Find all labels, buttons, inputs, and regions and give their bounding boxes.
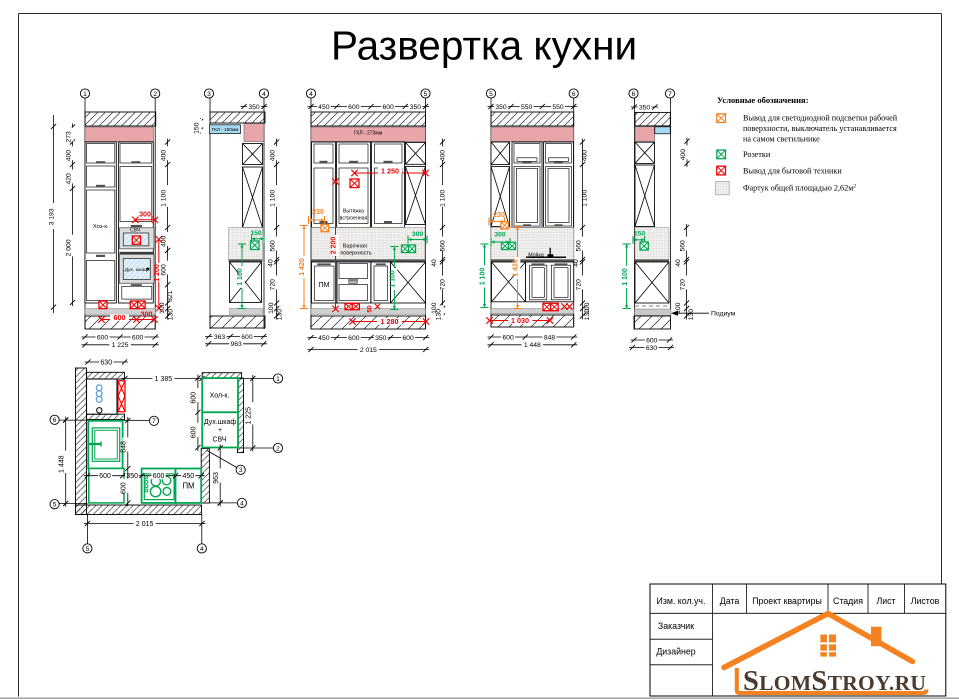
- svg-text:Развертка кухни: Развертка кухни: [331, 23, 637, 69]
- svg-text:560: 560: [575, 240, 582, 252]
- svg-text:600: 600: [382, 104, 394, 111]
- svg-text:600: 600: [646, 337, 658, 344]
- svg-text:1: 1: [83, 91, 87, 98]
- svg-text:300: 300: [412, 231, 424, 238]
- svg-text:720: 720: [440, 279, 447, 291]
- svg-text:400: 400: [65, 150, 72, 162]
- svg-text:40: 40: [675, 259, 682, 267]
- svg-text:550: 550: [552, 104, 564, 111]
- svg-text:Подиум: Подиум: [711, 311, 736, 318]
- svg-text:400: 400: [440, 150, 447, 162]
- svg-text:5: 5: [86, 546, 90, 553]
- svg-text:963: 963: [213, 472, 220, 484]
- svg-text:2 000: 2 000: [65, 239, 72, 256]
- svg-text:2: 2: [276, 445, 280, 452]
- svg-text:600: 600: [191, 392, 198, 404]
- svg-text:Вывод для светодиодной подсвет: Вывод для светодиодной подсветки рабочей: [743, 114, 898, 123]
- svg-text:400: 400: [160, 150, 167, 162]
- svg-text:130: 130: [435, 309, 442, 321]
- svg-text:Дух. шкаф: Дух. шкаф: [125, 267, 149, 273]
- svg-text:560: 560: [679, 240, 686, 252]
- svg-text:Варочная: Варочная: [343, 244, 367, 250]
- svg-text:720: 720: [269, 279, 276, 291]
- svg-text:350: 350: [495, 104, 507, 111]
- svg-text:1 100: 1 100: [237, 268, 244, 286]
- svg-text:на самом светильнике: на самом светильнике: [743, 134, 820, 143]
- svg-text:600: 600: [348, 104, 360, 111]
- svg-text:100: 100: [159, 302, 166, 314]
- svg-text:1 100: 1 100: [269, 190, 276, 207]
- svg-text:Условные обозначения:: Условные обозначения:: [717, 95, 809, 105]
- svg-text:450: 450: [183, 473, 195, 480]
- svg-text:150: 150: [193, 122, 200, 134]
- svg-text:600: 600: [121, 482, 128, 494]
- svg-text:630: 630: [100, 360, 112, 367]
- svg-text:130: 130: [168, 309, 175, 321]
- svg-text:1 225: 1 225: [246, 407, 253, 425]
- svg-text:50: 50: [367, 305, 374, 313]
- svg-text:848: 848: [544, 334, 556, 341]
- svg-text:4: 4: [309, 91, 313, 98]
- svg-text:5: 5: [489, 91, 493, 98]
- svg-text:600: 600: [160, 264, 167, 276]
- svg-text:350: 350: [375, 335, 387, 342]
- svg-text:Проект квартиры: Проект квартиры: [752, 596, 822, 606]
- svg-text:Хоз-к.: Хоз-к.: [93, 224, 109, 230]
- svg-text:100: 100: [675, 302, 682, 314]
- svg-text:350: 350: [410, 104, 422, 111]
- svg-text:400: 400: [582, 150, 589, 162]
- svg-text:130: 130: [277, 309, 284, 321]
- svg-text:350: 350: [248, 104, 260, 111]
- svg-text:ПМ: ПМ: [182, 481, 194, 490]
- svg-text:Лист: Лист: [876, 596, 895, 606]
- svg-text:40: 40: [573, 259, 580, 267]
- svg-text:40: 40: [267, 259, 274, 267]
- svg-text:1 448: 1 448: [59, 455, 66, 473]
- svg-text:363: 363: [214, 334, 226, 341]
- svg-text:1: 1: [276, 376, 280, 383]
- svg-text:40: 40: [431, 259, 438, 267]
- svg-text:Дух.шкаф: Дух.шкаф: [204, 419, 237, 426]
- svg-text:450: 450: [318, 104, 330, 111]
- svg-text:2: 2: [153, 91, 157, 98]
- svg-text:600: 600: [132, 334, 144, 341]
- svg-text:3 193: 3 193: [49, 208, 56, 225]
- svg-text:300: 300: [494, 231, 506, 238]
- svg-text:150: 150: [634, 230, 646, 237]
- svg-text:300: 300: [139, 212, 151, 219]
- svg-text:600: 600: [502, 334, 514, 341]
- svg-text:963: 963: [230, 341, 242, 348]
- svg-text:550: 550: [521, 104, 533, 111]
- svg-text:1 100: 1 100: [160, 190, 167, 207]
- svg-text:встроенная: встроенная: [340, 216, 368, 222]
- svg-text:4: 4: [262, 91, 266, 98]
- svg-text:1 420: 1 420: [299, 258, 306, 276]
- svg-text:150: 150: [250, 230, 262, 237]
- svg-text:6: 6: [632, 91, 636, 98]
- svg-text:Заказчик: Заказчик: [658, 621, 694, 631]
- svg-text:1 280: 1 280: [381, 317, 399, 326]
- svg-text:321: 321: [167, 290, 174, 302]
- svg-text:Стадия: Стадия: [833, 596, 863, 606]
- svg-text:3: 3: [207, 91, 211, 98]
- svg-text:230: 230: [493, 212, 505, 219]
- svg-text:350: 350: [639, 104, 651, 111]
- svg-text:848: 848: [121, 441, 128, 453]
- svg-text:7: 7: [152, 418, 156, 425]
- svg-text:1 100: 1 100: [480, 268, 487, 286]
- svg-text:1 225: 1 225: [112, 342, 129, 349]
- svg-text:600: 600: [153, 473, 165, 480]
- svg-text:600: 600: [348, 335, 360, 342]
- svg-text:поверхность: поверхность: [340, 251, 371, 257]
- svg-text:100: 100: [268, 302, 275, 314]
- svg-text:130: 130: [688, 309, 695, 321]
- svg-text:Розетки: Розетки: [743, 150, 771, 159]
- svg-text:1 100: 1 100: [622, 268, 629, 286]
- svg-text:600: 600: [97, 334, 109, 341]
- svg-text:СВЧ: СВЧ: [212, 437, 226, 444]
- svg-text:600: 600: [114, 313, 126, 322]
- svg-text:720: 720: [575, 279, 582, 291]
- svg-text:450: 450: [318, 335, 330, 342]
- svg-text:поверхности, выключатель устан: поверхности, выключатель устанавливается: [743, 124, 897, 133]
- svg-text:2 015: 2 015: [360, 347, 377, 354]
- svg-text:Вытяжка: Вытяжка: [343, 209, 364, 215]
- svg-text:560: 560: [440, 240, 447, 252]
- svg-text:400: 400: [160, 235, 167, 247]
- svg-text:7: 7: [668, 91, 672, 98]
- svg-text:230: 230: [312, 209, 324, 216]
- svg-text:600: 600: [241, 334, 253, 341]
- svg-text:SLOMSTROY.RU: SLOMSTROY.RU: [743, 666, 926, 697]
- svg-text:400: 400: [269, 150, 276, 162]
- svg-text:3: 3: [239, 467, 243, 474]
- svg-text:1 385: 1 385: [155, 376, 173, 383]
- svg-text:300: 300: [141, 310, 153, 319]
- svg-text:600: 600: [99, 473, 111, 480]
- svg-text:130: 130: [584, 309, 591, 321]
- svg-text:4: 4: [240, 500, 244, 507]
- svg-text:273: 273: [65, 131, 72, 143]
- svg-text:400: 400: [680, 149, 687, 161]
- svg-text:720: 720: [679, 279, 686, 291]
- svg-text:1 100: 1 100: [440, 190, 447, 207]
- svg-text:6: 6: [572, 91, 576, 98]
- svg-text:Хол-к.: Хол-к.: [210, 393, 230, 400]
- svg-text:560: 560: [269, 240, 276, 252]
- svg-text:5: 5: [53, 502, 57, 509]
- svg-text:2 200: 2 200: [331, 237, 338, 255]
- svg-text:ГКЛ - 150мм: ГКЛ - 150мм: [212, 127, 239, 132]
- svg-text:+: +: [218, 427, 222, 434]
- svg-text:Вывод для бытовой техники: Вывод для бытовой техники: [743, 167, 842, 176]
- svg-text:1 420: 1 420: [513, 259, 520, 277]
- svg-text:1 250: 1 250: [381, 166, 399, 175]
- svg-text:ПМ: ПМ: [319, 282, 330, 289]
- svg-text:6: 6: [53, 417, 57, 424]
- svg-text:1 030: 1 030: [511, 316, 529, 325]
- svg-text:600: 600: [191, 426, 198, 438]
- svg-text:420: 420: [65, 173, 72, 185]
- svg-text:5: 5: [424, 91, 428, 98]
- svg-text:Изм. кол.уч.: Изм. кол.уч.: [657, 596, 706, 606]
- svg-text:4: 4: [200, 546, 204, 553]
- svg-text:600: 600: [402, 335, 414, 342]
- svg-text:Листов: Листов: [911, 596, 940, 606]
- svg-text:1 100: 1 100: [582, 190, 589, 207]
- svg-text:1 448: 1 448: [524, 342, 541, 349]
- svg-text:Дизайнер: Дизайнер: [656, 647, 695, 657]
- svg-text:1 100: 1 100: [390, 270, 397, 288]
- svg-text:Фартук общей площадью 2,62м2: Фартук общей площадью 2,62м2: [743, 184, 856, 193]
- svg-text:2 015: 2 015: [136, 521, 154, 528]
- svg-text:Дата: Дата: [720, 596, 740, 606]
- svg-text:ГКЛ - 273мм: ГКЛ - 273мм: [354, 131, 383, 137]
- svg-text:630: 630: [646, 345, 658, 352]
